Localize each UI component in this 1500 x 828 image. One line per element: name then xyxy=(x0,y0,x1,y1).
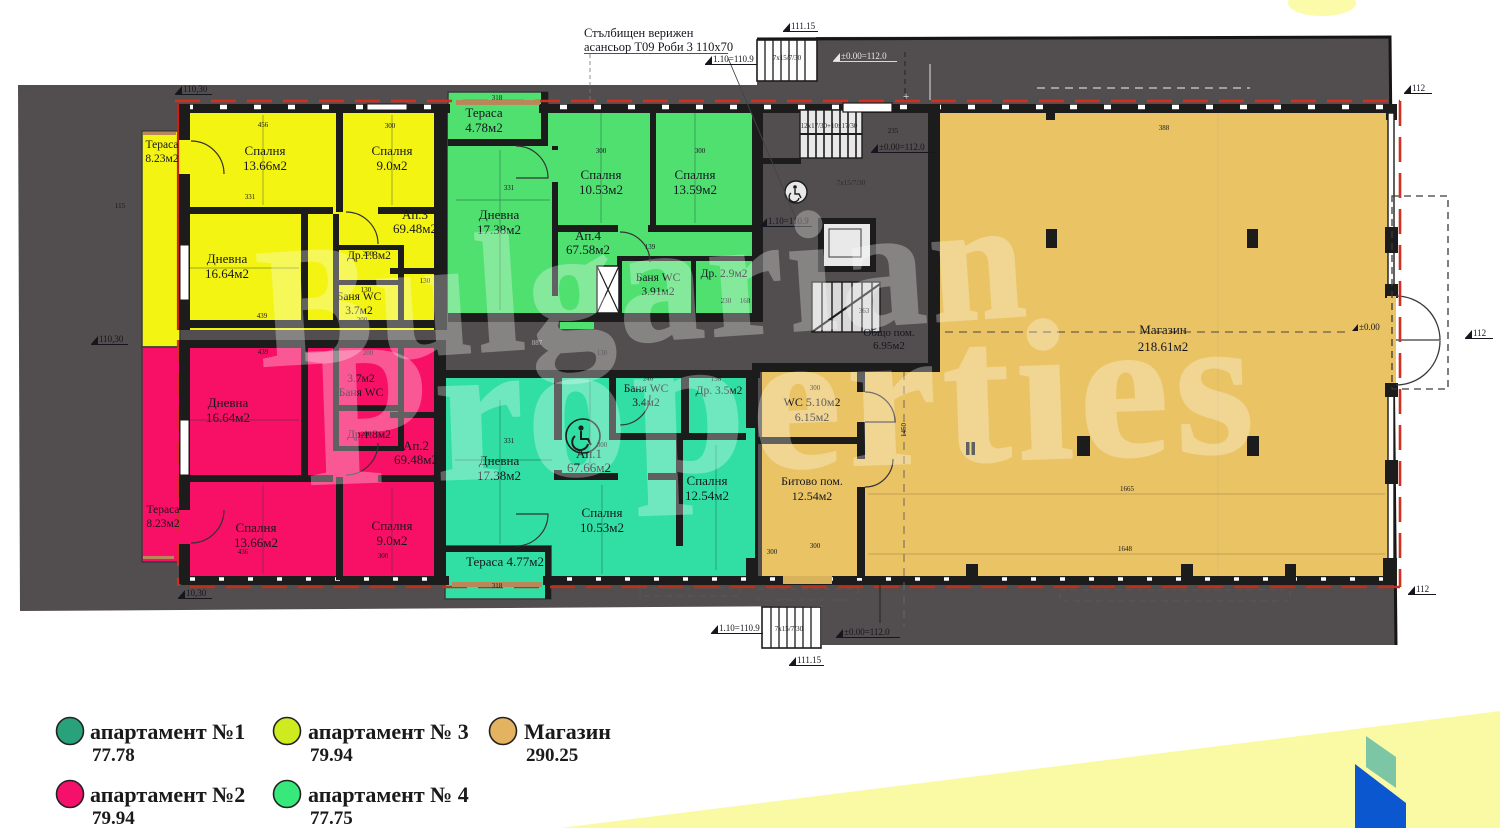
svg-text:79.94: 79.94 xyxy=(310,745,353,766)
svg-text:7х15/7/30: 7х15/7/30 xyxy=(773,54,802,62)
svg-text:10,30: 10,30 xyxy=(186,588,207,598)
svg-text:Тераса 4.77м2: Тераса 4.77м2 xyxy=(466,554,544,569)
svg-text:77.75: 77.75 xyxy=(310,808,353,828)
svg-text:112: 112 xyxy=(1412,83,1425,93)
svg-text:±0.00=112.0: ±0.00=112.0 xyxy=(844,627,890,637)
svg-text:7х15/7/30: 7х15/7/30 xyxy=(775,625,804,633)
svg-text:388: 388 xyxy=(1159,124,1170,132)
svg-text:112: 112 xyxy=(1416,584,1429,594)
svg-text:318: 318 xyxy=(492,582,503,590)
svg-text:235: 235 xyxy=(888,127,899,135)
svg-text:апартамент №2: апартамент №2 xyxy=(90,782,245,807)
svg-text:16.64м2: 16.64м2 xyxy=(206,410,250,425)
svg-text:±0.00=112.0: ±0.00=112.0 xyxy=(841,51,887,61)
svg-text:Дневна: Дневна xyxy=(207,251,248,266)
svg-text:300: 300 xyxy=(695,147,706,155)
svg-text:13.66м2: 13.66м2 xyxy=(243,158,287,173)
svg-text:1.10=110.9: 1.10=110.9 xyxy=(713,54,754,64)
svg-text:331: 331 xyxy=(504,184,515,192)
svg-text:111.15: 111.15 xyxy=(791,21,816,31)
svg-text:апартамент № 3: апартамент № 3 xyxy=(308,719,469,744)
svg-text:300: 300 xyxy=(810,542,821,550)
svg-text:Тераса: Тераса xyxy=(146,139,179,151)
svg-text:110,30: 110,30 xyxy=(183,84,208,94)
svg-text:Спалня: Спалня xyxy=(236,520,277,535)
svg-text:1648: 1648 xyxy=(1118,545,1133,553)
svg-text:111.15: 111.15 xyxy=(797,655,822,665)
svg-text:300: 300 xyxy=(378,552,389,560)
svg-text:8.23м2: 8.23м2 xyxy=(145,153,178,165)
svg-text:1.10=110.9: 1.10=110.9 xyxy=(719,623,760,633)
svg-text:Дневна: Дневна xyxy=(208,395,249,410)
svg-text:300: 300 xyxy=(385,122,396,130)
svg-text:79.94: 79.94 xyxy=(92,808,135,828)
svg-text:12х17/30+10х17/30: 12х17/30+10х17/30 xyxy=(801,122,858,130)
svg-text:Тераса: Тераса xyxy=(147,504,180,516)
svg-text:300: 300 xyxy=(767,548,778,556)
svg-text:4.78м2: 4.78м2 xyxy=(465,120,502,135)
svg-text:77.78: 77.78 xyxy=(92,745,135,766)
svg-text:апартамент № 4: апартамент № 4 xyxy=(308,782,469,807)
svg-text:Properties: Properties xyxy=(301,274,1263,528)
svg-text:112: 112 xyxy=(1473,328,1486,338)
svg-text:436: 436 xyxy=(238,548,249,556)
svg-text:Магазин: Магазин xyxy=(524,719,611,744)
svg-text:318: 318 xyxy=(492,94,503,102)
svg-text:115: 115 xyxy=(115,202,126,210)
svg-text:±0.00: ±0.00 xyxy=(1359,322,1380,332)
svg-text:290.25: 290.25 xyxy=(526,745,578,766)
svg-text:8.23м2: 8.23м2 xyxy=(146,518,179,530)
svg-text:±0.00=112.0: ±0.00=112.0 xyxy=(879,142,925,152)
svg-text:Стълбищен верижен: Стълбищен верижен xyxy=(584,26,694,40)
svg-text:Спалня: Спалня xyxy=(245,143,286,158)
svg-text:Тераса: Тераса xyxy=(465,105,502,120)
svg-text:асансьор Т09 Роби 3 110х70: асансьор Т09 Роби 3 110х70 xyxy=(584,40,733,54)
svg-text:331: 331 xyxy=(245,193,256,201)
svg-text:110,30: 110,30 xyxy=(99,334,124,344)
svg-text:апартамент №1: апартамент №1 xyxy=(90,719,245,744)
